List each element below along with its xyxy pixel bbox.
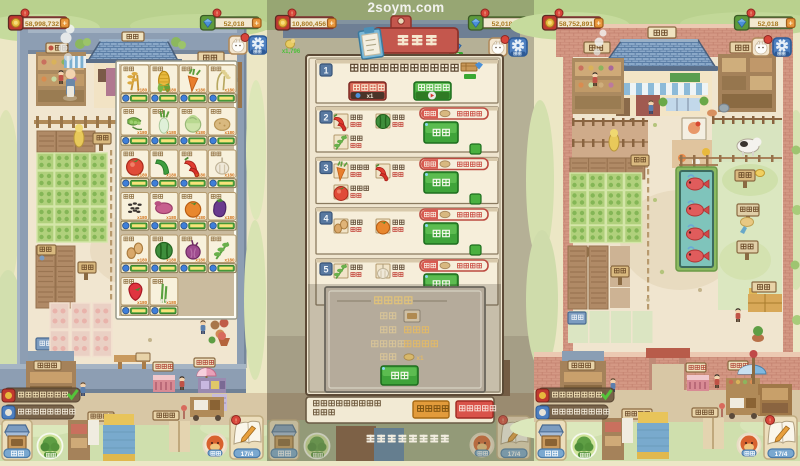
svg-text:+: + [789,19,794,28]
svg-text:+: + [597,19,602,28]
svg-text:x180: x180 [166,215,177,220]
svg-text:x180: x180 [224,88,235,93]
svg-text:17/4: 17/4 [775,451,788,458]
svg-text:+: + [63,19,68,28]
svg-text:17/4: 17/4 [241,451,254,458]
svg-text:58,998,732: 58,998,732 [25,21,59,28]
svg-text:x180: x180 [195,173,206,178]
svg-text:+: + [330,19,335,28]
svg-text:x180: x180 [166,300,177,305]
svg-text:!: ! [291,12,293,18]
svg-text:x180: x180 [195,130,206,135]
svg-text:!: ! [216,12,218,18]
svg-text:+: + [255,19,260,28]
svg-text:10,800,456: 10,800,456 [292,21,326,28]
svg-text:x180: x180 [224,258,235,263]
svg-text:x180: x180 [166,258,177,263]
svg-text:x1,796: x1,796 [282,49,301,55]
svg-text:x180: x180 [224,130,235,135]
svg-text:x180: x180 [224,215,235,220]
svg-text:!: ! [769,419,771,425]
svg-text:x180: x180 [166,173,177,178]
svg-text:x180: x180 [195,258,206,263]
svg-text:x1: x1 [416,355,424,362]
svg-text:58,752,891: 58,752,891 [559,21,593,28]
svg-text:!: ! [235,419,237,425]
svg-text:1: 1 [323,66,328,76]
svg-text:x180: x180 [137,300,148,305]
svg-text:x180: x180 [137,130,148,135]
svg-text:x180: x180 [137,88,148,93]
svg-text:!: ! [484,12,486,18]
svg-text:52,018: 52,018 [492,21,513,28]
svg-text:x180: x180 [166,88,177,93]
svg-text:x180: x180 [224,173,235,178]
svg-text:2: 2 [323,113,328,123]
svg-text:52,018: 52,018 [758,21,779,28]
svg-text:!: ! [24,12,26,18]
svg-text:x1: x1 [367,94,374,100]
svg-text:!: ! [558,12,560,18]
svg-text:5: 5 [323,265,328,275]
svg-text:x180: x180 [195,88,206,93]
svg-text:x180: x180 [137,215,148,220]
svg-text:x180: x180 [166,130,177,135]
svg-text:x180: x180 [137,173,148,178]
svg-text:3: 3 [323,163,328,173]
svg-text:!: ! [750,12,752,18]
svg-text:x180: x180 [195,215,206,220]
svg-text:4: 4 [323,214,328,224]
svg-text:x180: x180 [137,258,148,263]
svg-text:2soym.com: 2soym.com [368,0,445,15]
svg-text:52,018: 52,018 [224,21,245,28]
